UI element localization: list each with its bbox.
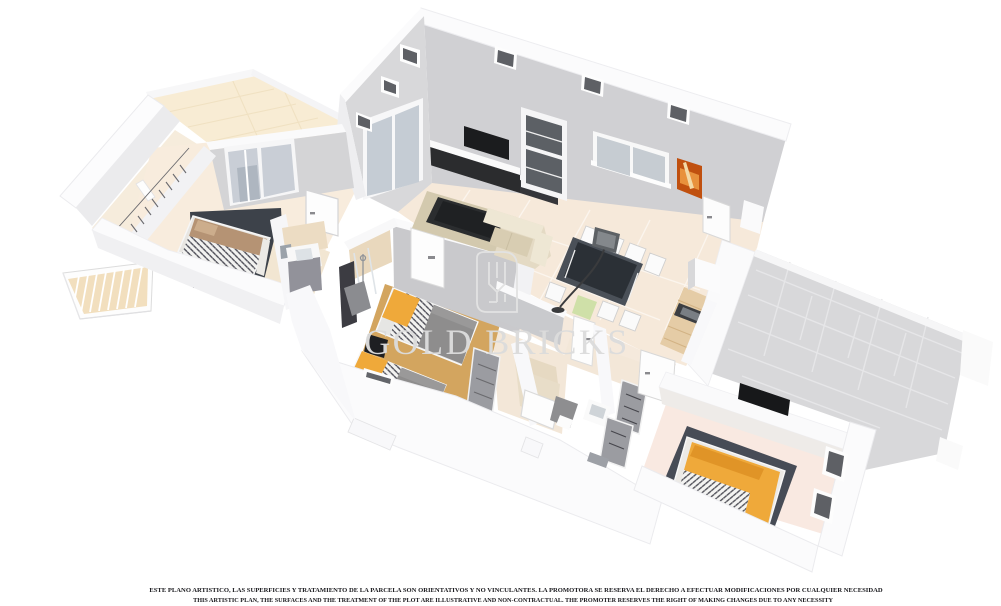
- svg-text:GOLD BRICKS: GOLD BRICKS: [364, 322, 629, 362]
- svg-text:THIS ARTISTIC PLAN, THE SURFAC: THIS ARTISTIC PLAN, THE SURFACES AND THE…: [193, 597, 833, 604]
- svg-text:ESTE PLANO ARTISTICO, LAS SUPE: ESTE PLANO ARTISTICO, LAS SUPERFICIES Y …: [149, 587, 883, 594]
